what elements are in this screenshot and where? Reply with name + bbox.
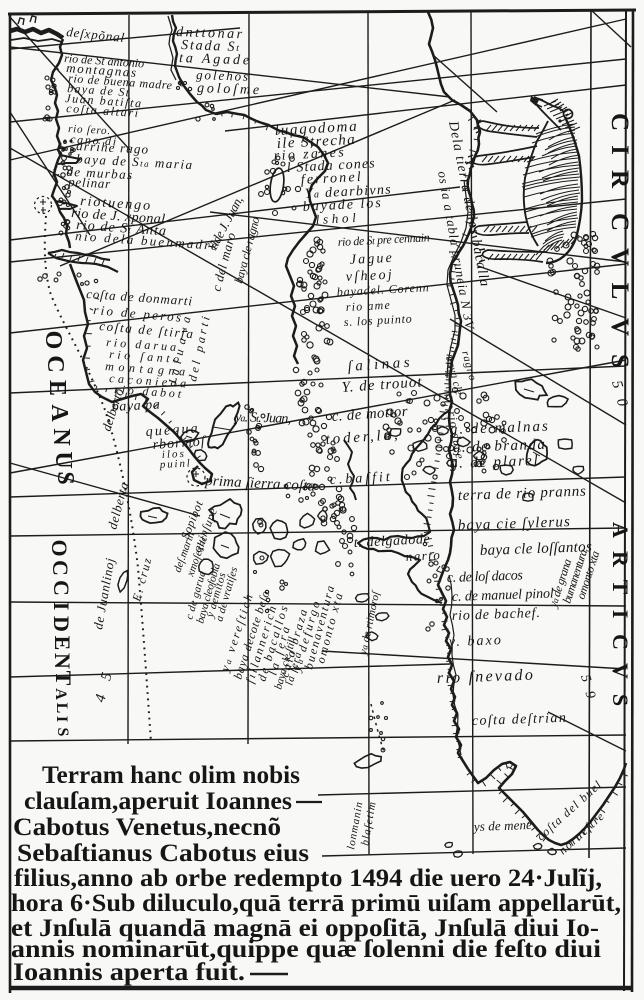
- svg-text:toder,la,: toder,la,: [325, 427, 398, 448]
- svg-text:coſta del buel: coſta del buel: [534, 778, 605, 844]
- svg-text:V: V: [606, 248, 633, 266]
- svg-text:filius,anno ab orbe redempto 1: filius,anno ab orbe redempto 1494 die ue…: [14, 865, 602, 892]
- svg-text:ys de mene: ys de mene: [472, 817, 533, 834]
- svg-text:I: I: [49, 602, 74, 611]
- svg-text:A: A: [46, 404, 72, 422]
- svg-text:rio de St pre cennain: rio de St pre cennain: [337, 230, 430, 249]
- svg-text:Cabotus Venetus,necnõ: Cabotus Venetus,necnõ: [13, 814, 281, 841]
- svg-text:s. los puinto: s. los puinto: [343, 311, 412, 329]
- svg-text:C: C: [606, 113, 633, 131]
- svg-text:goloſme: goloſme: [197, 81, 259, 98]
- svg-text:O: O: [47, 539, 72, 556]
- svg-text:c. de manuel pinol: c. de manuel pinol: [452, 586, 555, 605]
- svg-text:E. cruz: E. cruz: [129, 556, 154, 603]
- svg-text:Sebaſtianus Cabotus eius: Sebaſtianus Cabotus eius: [17, 840, 309, 867]
- svg-text:Terram hanc olim nobis: Terram hanc olim nobis: [42, 762, 300, 789]
- svg-text:rio de bachef.: rio de bachef.: [452, 606, 540, 624]
- svg-text:L: L: [53, 703, 70, 714]
- svg-text:C: C: [49, 580, 74, 596]
- svg-text:deſxpõnal: deſxpõnal: [66, 24, 126, 45]
- svg-text:T: T: [608, 580, 633, 595]
- svg-text:baya cie ſylerus: baya cie ſylerus: [458, 514, 571, 534]
- svg-text:Jague: Jague: [349, 251, 392, 268]
- svg-text:V: V: [608, 663, 633, 679]
- svg-text:N: N: [50, 653, 75, 669]
- svg-text:S: S: [54, 728, 71, 737]
- svg-text:5 9: 5 9: [577, 673, 598, 700]
- svg-text:c. de mottor: c. de mottor: [331, 404, 408, 425]
- svg-text:C: C: [42, 355, 68, 372]
- svg-text:D: D: [49, 616, 74, 632]
- svg-text:T: T: [51, 671, 76, 686]
- svg-text:ta Agade: ta Agade: [179, 51, 249, 68]
- svg-text:E: E: [50, 636, 75, 651]
- svg-text:g. de malnas: g. de malnas: [450, 419, 549, 438]
- svg-text:C: C: [48, 560, 73, 576]
- svg-text:L: L: [606, 283, 633, 300]
- svg-text:C: C: [608, 634, 633, 650]
- svg-text:ya. St. Juan,: ya. St. Juan,: [233, 410, 291, 427]
- svg-text:c. de loſ dacos: c. de loſ dacos: [447, 568, 524, 586]
- svg-text:rio ame: rio ame: [345, 298, 390, 314]
- svg-text:y. baxo: y. baxo: [447, 633, 501, 650]
- svg-text:N: N: [48, 428, 74, 446]
- svg-text:ya de rtimoroſ: ya de rtimoroſ: [357, 589, 383, 657]
- svg-text:O: O: [40, 331, 66, 350]
- svg-text:C: C: [606, 213, 633, 231]
- svg-text:4 5: 4 5: [92, 670, 115, 704]
- svg-text:V: V: [606, 318, 633, 336]
- svg-text:coſta deſtrian: coſta deſtrian: [472, 711, 566, 729]
- svg-text:5 0: 5 0: [608, 379, 630, 409]
- svg-text:I: I: [608, 610, 633, 619]
- svg-text:clauſam,aperuit Ioannes: clauſam,aperuit Ioannes: [24, 788, 292, 815]
- svg-text:E: E: [44, 380, 70, 396]
- svg-text:puinl: puinl: [159, 457, 191, 471]
- svg-text:R: R: [606, 170, 633, 189]
- svg-text:prima ſierra coſta: prima ſierra coſta: [204, 473, 316, 495]
- svg-text:A: A: [52, 688, 69, 700]
- svg-text:terra de rio pranns: terra de rio pranns: [458, 484, 587, 504]
- svg-text:ragno: ragno: [459, 350, 478, 383]
- svg-text:S: S: [608, 694, 633, 706]
- svg-text:narto: narto: [405, 547, 440, 564]
- svg-text:c.baſfit: c.baſfit: [329, 470, 391, 488]
- svg-text:S: S: [606, 354, 633, 368]
- svg-text:hora 6·Sub diluculo,quā terrā: hora 6·Sub diluculo,quā terrā primū uiſa…: [11, 890, 621, 917]
- svg-text:I: I: [53, 716, 70, 722]
- svg-text:rio ſnevado: rio ſnevado: [437, 667, 534, 687]
- svg-text:I: I: [606, 145, 633, 155]
- svg-text:delberta: delberta: [104, 480, 131, 531]
- svg-text:R: R: [608, 551, 633, 568]
- svg-text:rio duce: rio duce: [445, 410, 467, 460]
- svg-text:pelinar: pelinar: [67, 174, 112, 191]
- svg-text:A: A: [608, 522, 633, 538]
- svg-text:baya cle ragno: baya cle ragno: [231, 215, 262, 284]
- svg-text:Ioannis aperta fuit.: Ioannis aperta fuit.: [13, 959, 245, 986]
- svg-text:de Juanlinoj: de Juanlinoj: [90, 557, 117, 631]
- svg-text:ſalinas: ſalinas: [347, 355, 410, 375]
- svg-text:U: U: [50, 451, 76, 468]
- svg-text:S: S: [52, 471, 78, 484]
